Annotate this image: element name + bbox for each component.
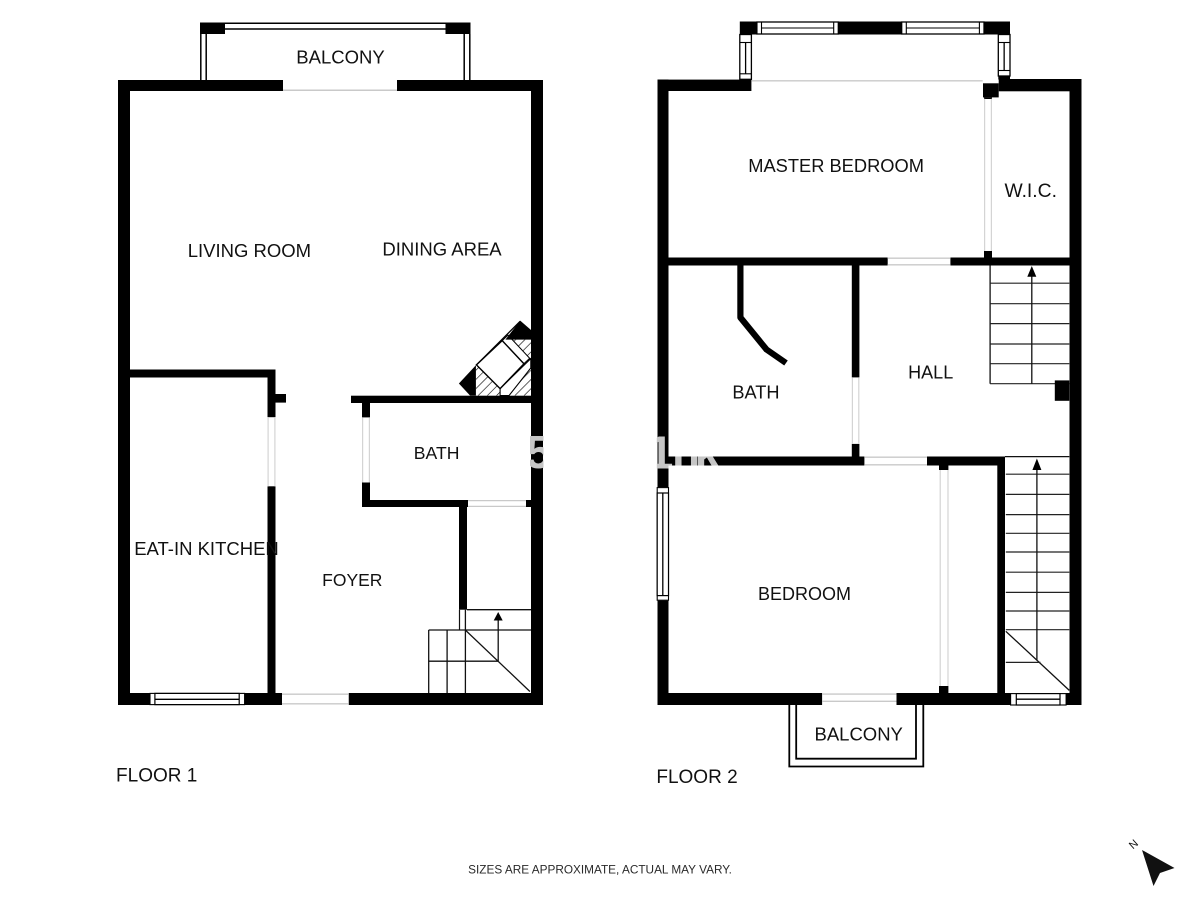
svg-text:FLOOR 2: FLOOR 2 [656,767,737,788]
svg-text:LIVING ROOM: LIVING ROOM [188,240,311,261]
svg-text:BALCONY: BALCONY [814,724,902,745]
svg-text:W.I.C.: W.I.C. [1004,181,1057,202]
svg-text:DINING AREA: DINING AREA [382,238,502,259]
svg-text:BATH: BATH [732,383,779,403]
svg-text:FLOOR 1: FLOOR 1 [116,766,197,787]
svg-text:BATH: BATH [414,443,460,463]
svg-text:SIZES ARE APPROXIMATE, ACTUAL: SIZES ARE APPROXIMATE, ACTUAL MAY VARY. [468,862,732,876]
svg-text:BALCONY: BALCONY [296,47,384,68]
svg-text:BEDROOM: BEDROOM [758,584,851,604]
svg-text:FOYER: FOYER [322,570,382,590]
svg-text:HALL: HALL [908,363,953,383]
svg-text:MASTER BEDROOM: MASTER BEDROOM [748,155,924,176]
svg-text:EAT-IN KITCHEN: EAT-IN KITCHEN [134,538,279,559]
